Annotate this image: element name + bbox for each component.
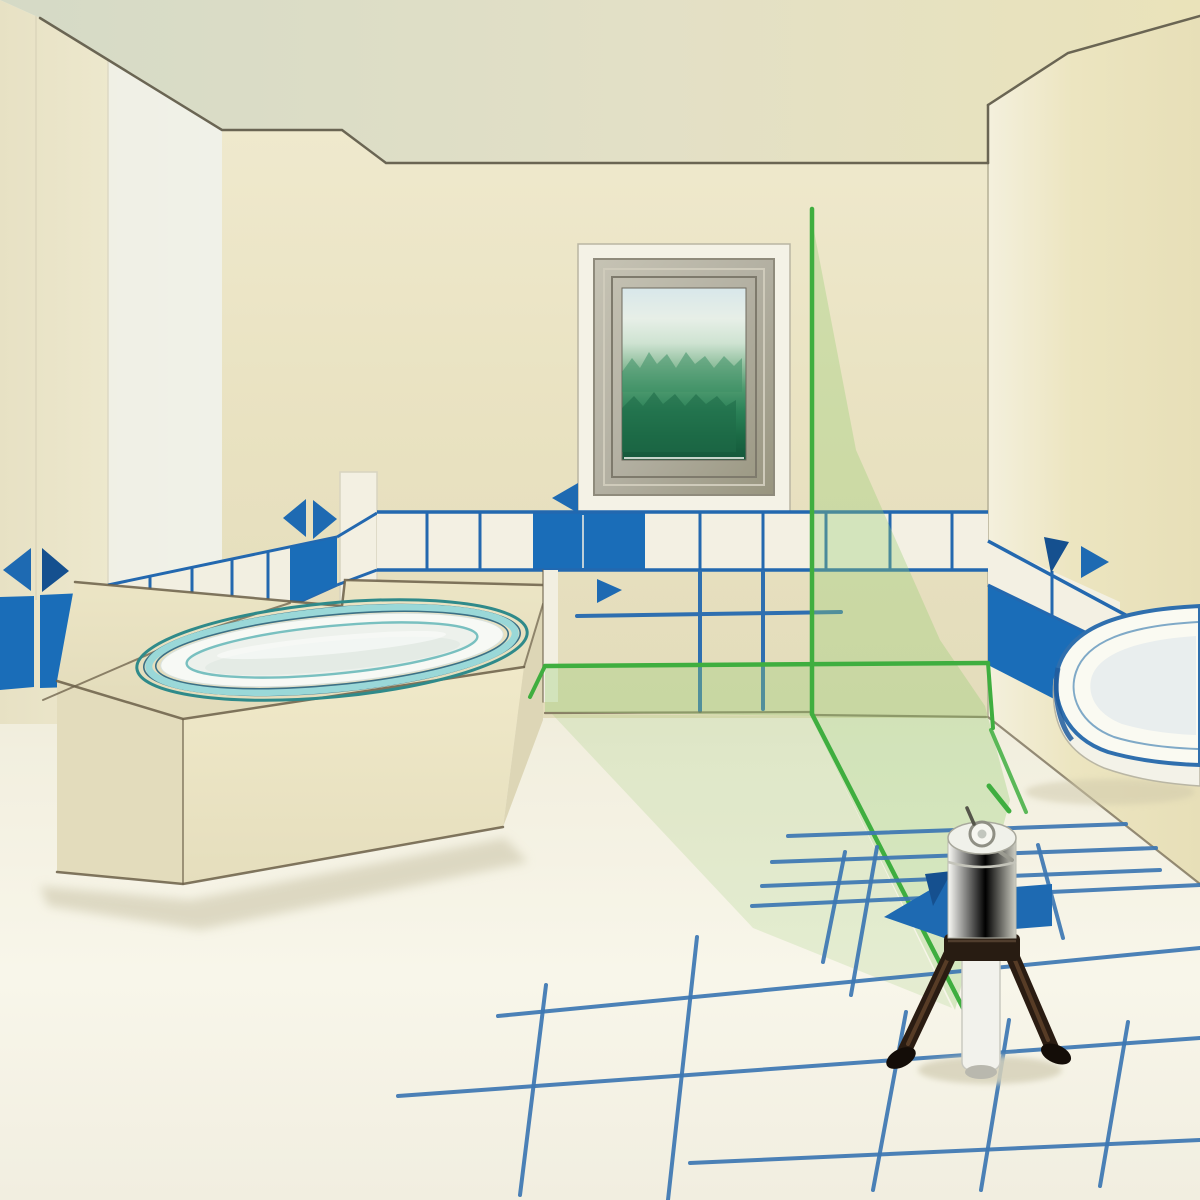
tripod-center-column	[962, 948, 1000, 1070]
device-lens	[978, 830, 987, 839]
tile-solid	[533, 513, 645, 570]
tripod-center-foot	[965, 1065, 997, 1079]
scene-canvas	[0, 0, 1200, 1200]
laser-splash-wall-strip	[545, 663, 812, 716]
tile-solid	[0, 596, 34, 690]
window	[578, 244, 790, 512]
illustration-bathroom-laser-scene	[0, 0, 1200, 1200]
laser-horizontal-line	[545, 663, 988, 666]
